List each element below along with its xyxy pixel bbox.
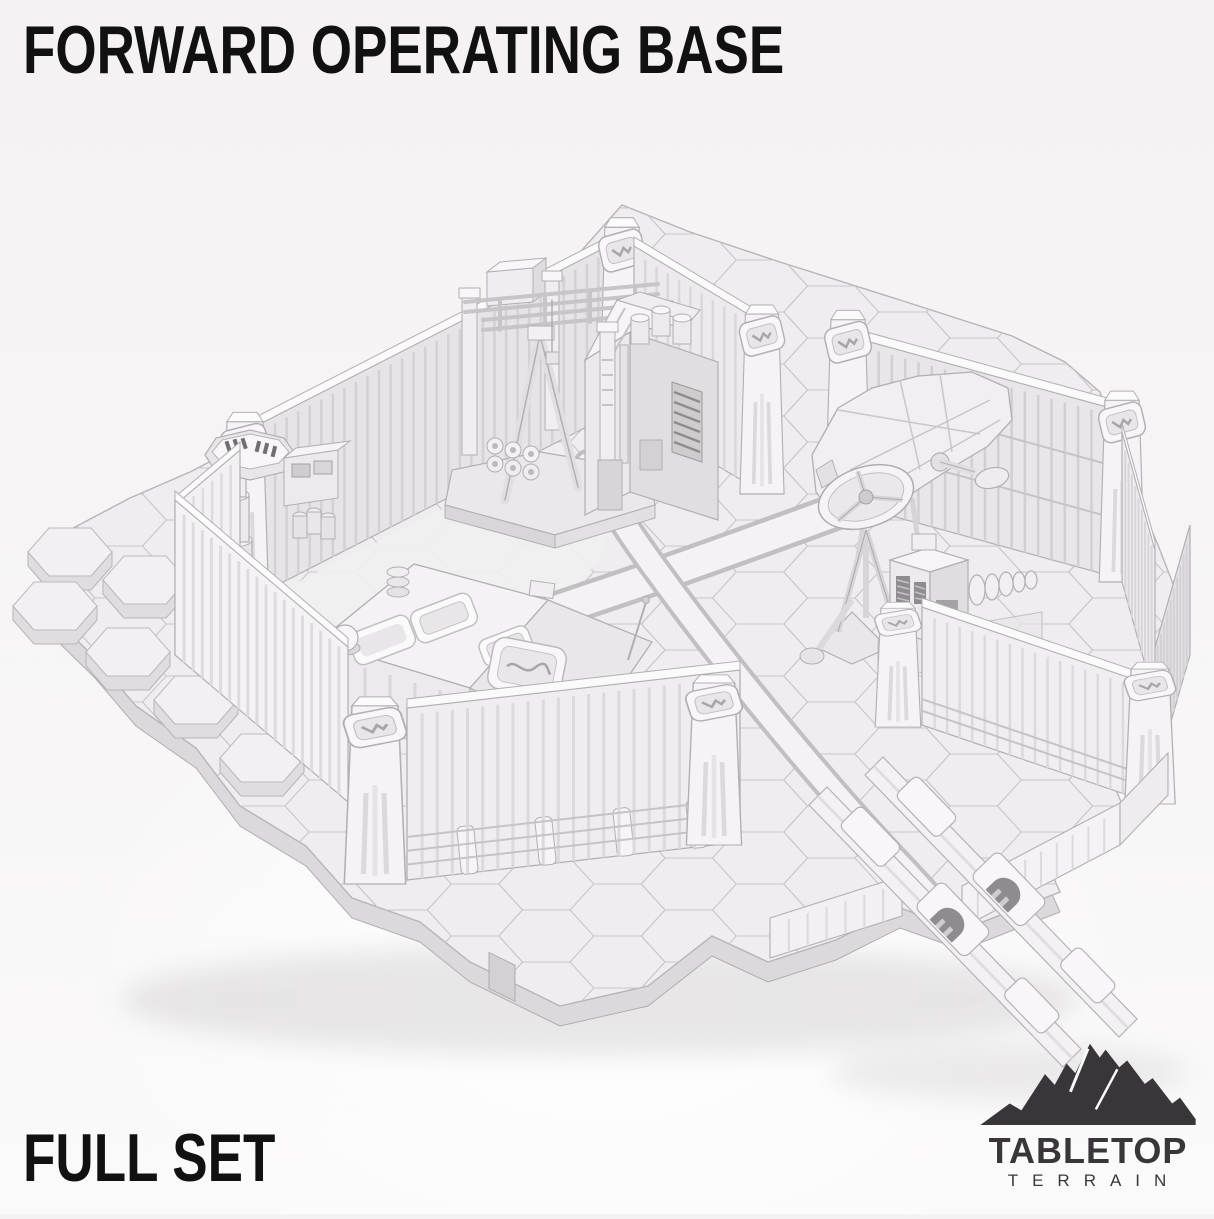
scene-wrap <box>0 0 1214 1214</box>
pillar-right-compound-front <box>873 602 923 727</box>
tower-pipes <box>293 508 335 539</box>
brand-subname: TERRAIN <box>980 1170 1196 1192</box>
factory-louver-grill <box>672 382 702 462</box>
scene-render <box>0 0 1214 1214</box>
poster-subtitle: FULL SET <box>23 1124 275 1192</box>
mountain-icon <box>980 1035 1196 1127</box>
pillar-south-gate <box>684 675 745 845</box>
brand-logo: TABLETOP TERRAIN <box>980 1035 1196 1192</box>
gate-pillar-east <box>738 305 787 494</box>
brand-name: TABLETOP <box>980 1132 1196 1170</box>
pillar-south-west <box>341 697 409 884</box>
